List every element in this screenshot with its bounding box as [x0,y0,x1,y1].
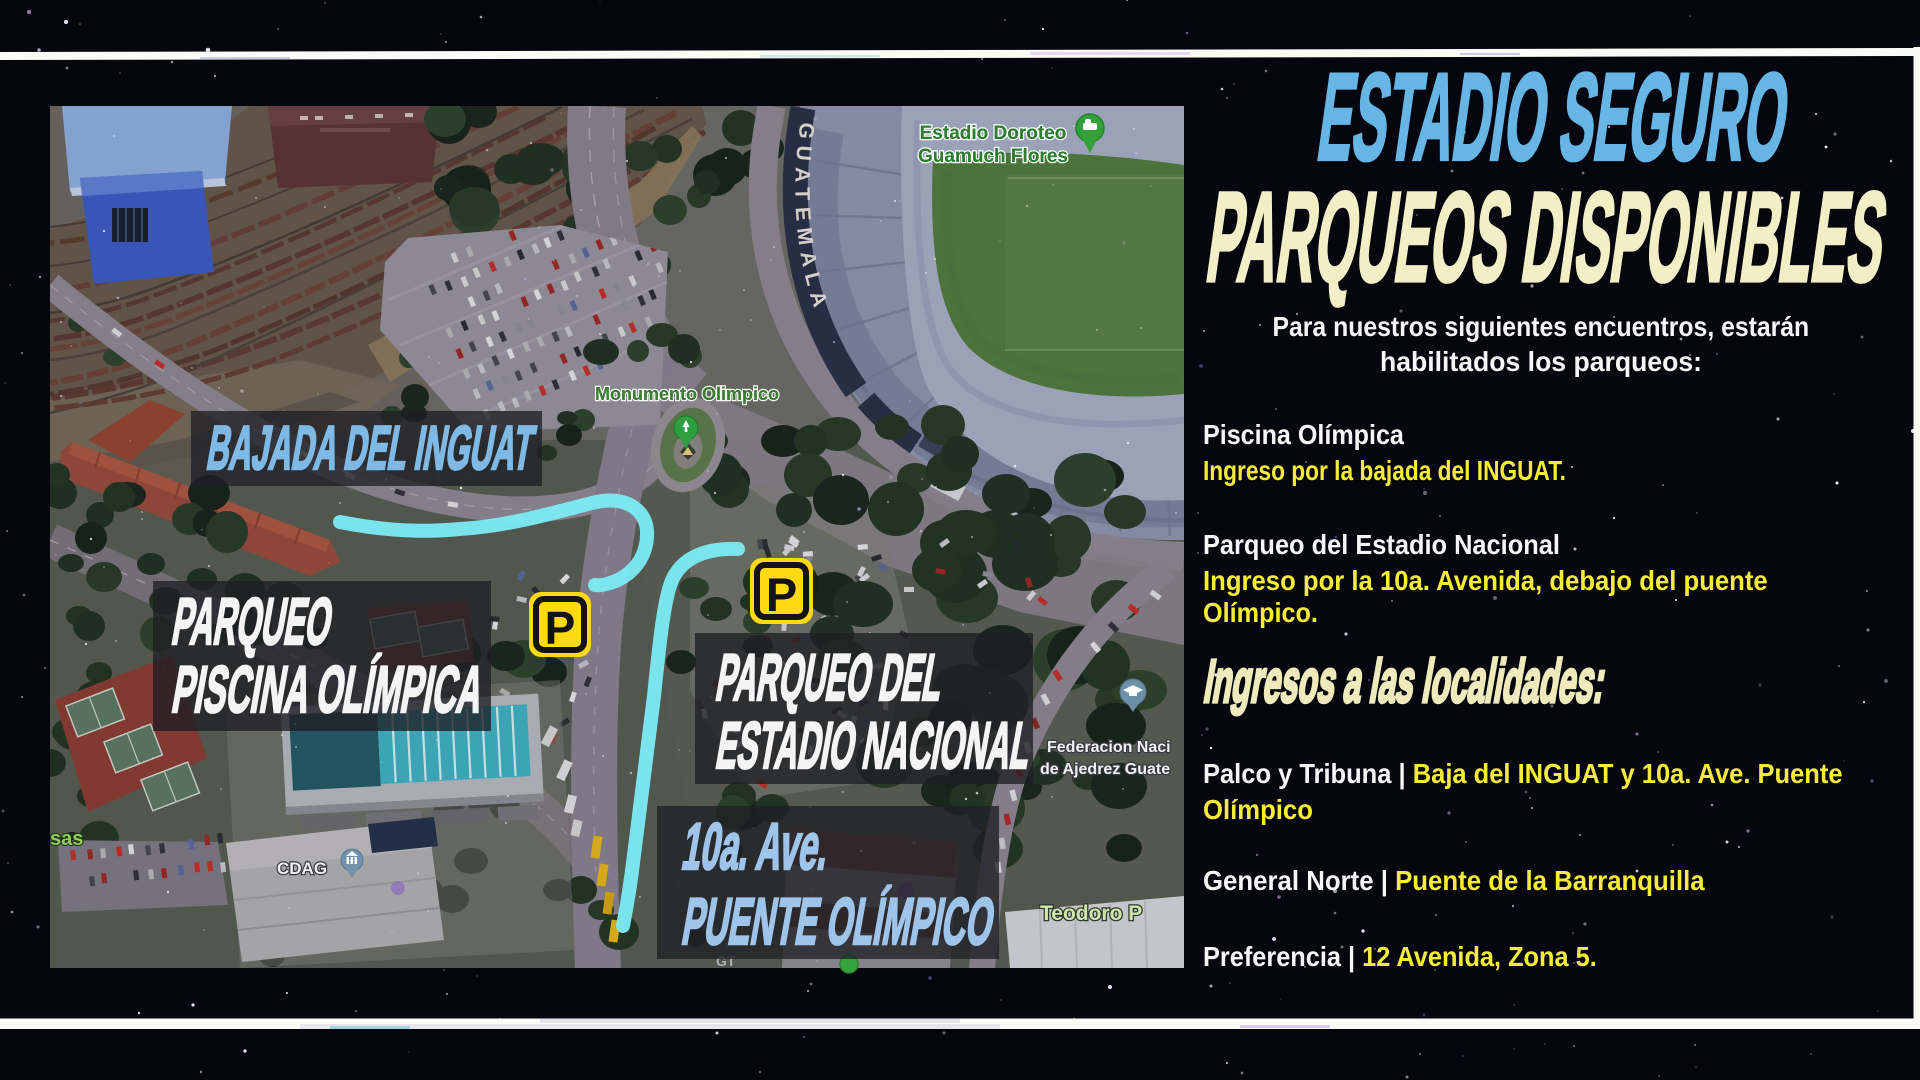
svg-text:Preferencia | 12 Avenida, Zona: Preferencia | 12 Avenida, Zona 5. [1203,941,1597,972]
svg-text:Estadio Doroteo: Estadio Doroteo [920,123,1067,144]
svg-text:Guamuch Flores: Guamuch Flores [918,146,1068,167]
svg-text:General Norte | Puente de la B: General Norte | Puente de la Barranquill… [1203,865,1706,896]
svg-text:Ingresos a las localidades:: Ingresos a las localidades: [1200,649,1612,716]
svg-text:PUENTE OLÍMPICO: PUENTE OLÍMPICO [677,884,1000,959]
svg-text:Piscina Olímpica: Piscina Olímpica [1203,419,1404,451]
svg-text:ESTADIO NACIONAL: ESTADIO NACIONAL [711,710,1037,783]
svg-text:Para nuestros siguientes encue: Para nuestros siguientes encuentros, est… [1273,311,1810,343]
svg-text:PARQUEO DEL: PARQUEO DEL [711,642,949,715]
svg-text:Monumento Olimpico: Monumento Olimpico [595,384,779,404]
svg-text:BAJADA DEL INGUAT: BAJADA DEL INGUAT [203,413,540,483]
svg-text:PARQUEO: PARQUEO [167,586,338,659]
svg-text:habilitados los parqueos:: habilitados los parqueos: [1380,345,1702,377]
svg-text:Olímpico.: Olímpico. [1203,597,1318,629]
svg-text:Ingreso por la bajada del INGU: Ingreso por la bajada del INGUAT. [1203,456,1566,487]
svg-text:Parqueo del Estadio Nacional: Parqueo del Estadio Nacional [1203,529,1560,560]
svg-text:Federacion Naci: Federacion Naci [1047,739,1171,756]
svg-text:Ingreso por la 10a. Avenida, d: Ingreso por la 10a. Avenida, debajo del … [1203,565,1768,596]
svg-text:P: P [545,602,576,654]
svg-text:Teodoro P: Teodoro P [1040,902,1142,925]
svg-text:Palco y Tribuna | Baja del ING: Palco y Tribuna | Baja del INGUAT y 10a.… [1203,758,1843,789]
svg-text:P: P [766,568,797,621]
svg-text:PISCINA OLÍMPICA: PISCINA OLÍMPICA [167,652,489,727]
svg-text:Olímpico: Olímpico [1203,794,1313,825]
svg-text:10a. Ave.: 10a. Ave. [677,811,835,884]
svg-text:PARQUEOS DISPONIBLES: PARQUEOS DISPONIBLES [1200,166,1896,308]
svg-text:sas: sas [50,828,83,850]
svg-text:CDAG: CDAG [277,859,327,878]
svg-text:de Ajedrez Guate: de Ajedrez Guate [1040,761,1170,778]
